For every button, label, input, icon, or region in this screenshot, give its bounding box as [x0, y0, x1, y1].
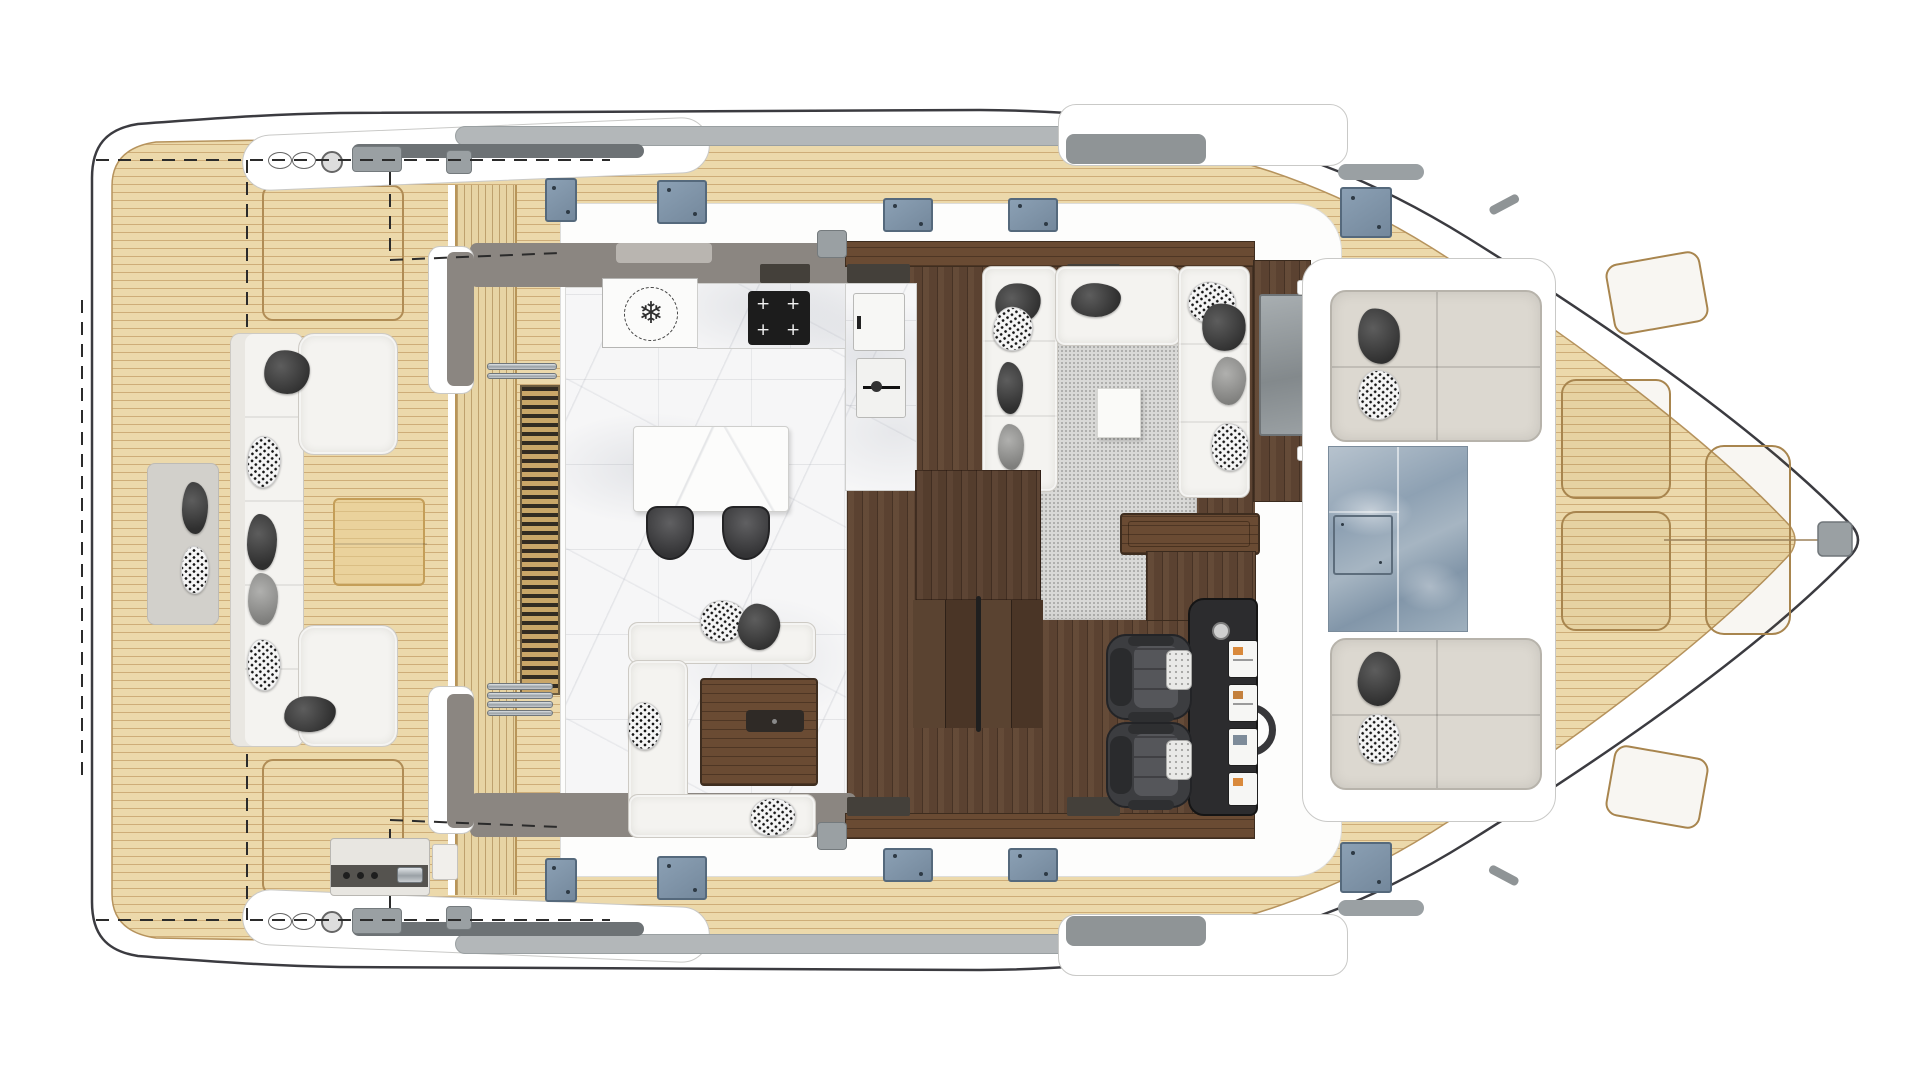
- galley-door-recess: [616, 243, 712, 263]
- dinette-table: [700, 678, 818, 786]
- helm-footrest: [1166, 740, 1192, 780]
- island-table: [633, 426, 789, 512]
- deck-hatch: [1008, 198, 1058, 232]
- deck-panel-outline: [263, 186, 403, 320]
- winch-ring: [321, 911, 343, 933]
- roof-bar-small: [1338, 164, 1424, 180]
- anchor-roller: [1818, 522, 1852, 556]
- bow-cleat: [1488, 193, 1520, 216]
- snowflake-icon: ❄: [638, 299, 663, 329]
- cleat-oval: [268, 152, 292, 169]
- cleat-oval: [292, 152, 316, 169]
- roof-fitting: [352, 146, 402, 172]
- window-strip: [847, 264, 910, 283]
- deck-fitting: [446, 150, 472, 174]
- helm-footrest: [1166, 650, 1192, 690]
- deck-hatch: [1008, 848, 1058, 882]
- sun-pad: [1330, 290, 1542, 442]
- roof-bar-small: [1338, 900, 1424, 916]
- cube-table: [1097, 388, 1141, 438]
- helm-display: [1228, 640, 1258, 678]
- winch-ring: [321, 151, 343, 173]
- cleat-oval: [292, 913, 316, 930]
- roof-fitting: [352, 908, 402, 934]
- deck-box: [432, 844, 458, 880]
- door-jamb-core: [447, 252, 474, 386]
- cooktop: + + + +: [748, 291, 810, 345]
- deck-hatch: [545, 858, 577, 902]
- bow-locker-outline: [1605, 744, 1710, 829]
- bow-cleat: [1488, 864, 1520, 887]
- galley-cabinet: [853, 293, 905, 351]
- deck-hatch: [657, 856, 707, 900]
- roof-bar: [455, 126, 1080, 146]
- window-sill-bottom: [845, 813, 1255, 839]
- window-strip: [760, 264, 810, 283]
- deck-hatch: [883, 198, 933, 232]
- helm-display: [1228, 728, 1258, 766]
- deck-hatch: [883, 848, 933, 882]
- companionway-steps: [913, 600, 1043, 728]
- sun-pad: [1330, 638, 1542, 790]
- pillow: [181, 546, 209, 594]
- bow-center-panel: [1706, 446, 1790, 634]
- radar-arch-inner: [1066, 134, 1206, 164]
- deck-fitting: [446, 906, 472, 930]
- tv-panel: [1259, 294, 1306, 436]
- cleat-oval: [268, 913, 292, 930]
- boarding-grate: [520, 385, 560, 695]
- aft-chaise: [298, 333, 398, 455]
- roof-bar: [455, 934, 1080, 954]
- helm-display: [1228, 772, 1258, 806]
- door-track-fitting: [817, 230, 847, 258]
- galley-sink: [856, 358, 906, 418]
- bow-locker-outline: [1605, 250, 1710, 335]
- deck-hatch: [1340, 842, 1392, 893]
- window-strip: [847, 797, 910, 816]
- snowflake-badge: ❄: [624, 287, 678, 341]
- deck-hatch: [1340, 187, 1392, 238]
- deck-hatch: [657, 180, 707, 224]
- refrigerator: ❄: [602, 278, 698, 348]
- door-jamb-core: [447, 694, 474, 828]
- outdoor-grill: [330, 838, 430, 896]
- aft-coffee-table: [333, 498, 425, 586]
- floor-plan-canvas: ❄ + + + +: [0, 0, 1920, 1080]
- pillow: [628, 702, 662, 750]
- deck-hatch: [545, 178, 577, 222]
- walnut-bar: [1120, 513, 1260, 555]
- throttle-knob: [1212, 622, 1230, 640]
- stair-enclosure: [915, 470, 1041, 600]
- lounger-mat: [147, 463, 219, 625]
- door-track-fitting: [817, 822, 847, 850]
- bow-locker-outline: [1562, 380, 1670, 498]
- glass-hatch: [1333, 515, 1393, 575]
- rail-bar: [487, 363, 557, 370]
- handrail: [976, 596, 981, 732]
- folding-ladder: [487, 683, 553, 716]
- bow-locker-outline: [1562, 512, 1670, 630]
- rail-bar: [487, 373, 557, 379]
- radar-arch-inner: [1066, 916, 1206, 946]
- skylight-windshield: [1328, 446, 1468, 632]
- helm-display: [1228, 684, 1258, 722]
